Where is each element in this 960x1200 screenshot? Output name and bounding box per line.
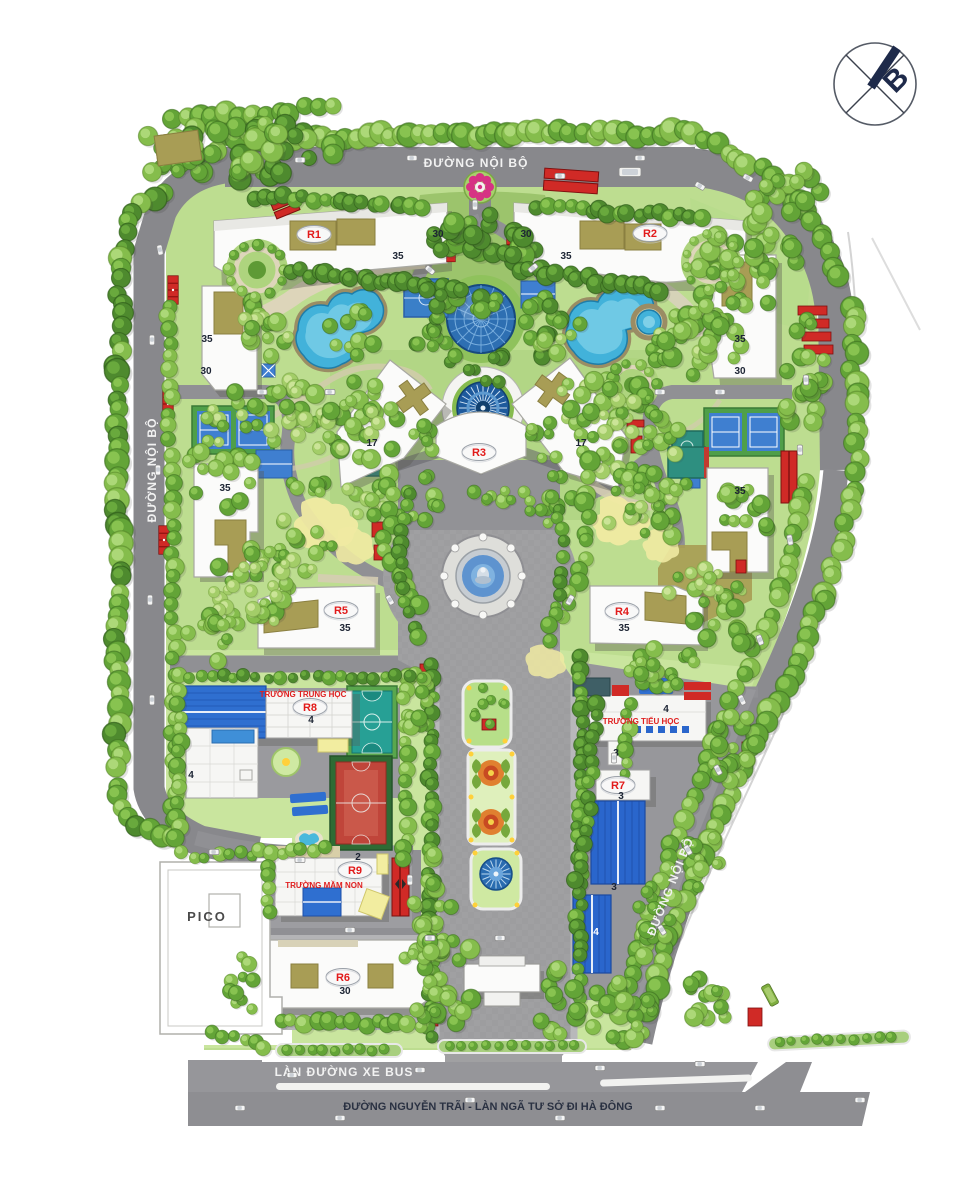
svg-text:30: 30: [734, 366, 746, 377]
svg-text:3: 3: [611, 882, 617, 893]
svg-text:35: 35: [734, 486, 746, 497]
svg-text:R9: R9: [348, 865, 362, 877]
svg-text:ĐƯỜNG NỘI BỘ: ĐƯỜNG NỘI BỘ: [424, 155, 529, 170]
svg-text:35: 35: [734, 334, 746, 345]
svg-text:30: 30: [520, 229, 532, 240]
svg-text:30: 30: [339, 986, 351, 997]
svg-text:4: 4: [663, 704, 669, 715]
svg-text:4: 4: [593, 927, 599, 938]
svg-text:35: 35: [201, 334, 213, 345]
svg-text:35: 35: [618, 623, 630, 634]
svg-text:R2: R2: [643, 228, 657, 240]
svg-text:R5: R5: [334, 605, 348, 617]
svg-text:R6: R6: [336, 972, 350, 984]
svg-text:R4: R4: [615, 606, 630, 618]
svg-text:R8: R8: [303, 702, 317, 714]
svg-text:17: 17: [575, 438, 587, 449]
svg-text:17: 17: [366, 438, 378, 449]
svg-text:3: 3: [618, 791, 624, 802]
svg-text:TRƯỜNG TRUNG HỌC: TRƯỜNG TRUNG HỌC: [260, 690, 347, 699]
svg-text:R3: R3: [472, 447, 486, 459]
svg-text:30: 30: [200, 366, 212, 377]
svg-text:2: 2: [355, 852, 361, 863]
svg-text:TRƯỜNG TIỂU HỌC: TRƯỜNG TIỂU HỌC: [603, 717, 680, 726]
svg-text:35: 35: [339, 623, 351, 634]
svg-text:PICO: PICO: [187, 909, 227, 924]
svg-text:4: 4: [308, 715, 314, 726]
svg-text:35: 35: [560, 251, 572, 262]
svg-text:4: 4: [188, 770, 194, 781]
svg-text:35: 35: [219, 483, 231, 494]
svg-text:R1: R1: [307, 229, 321, 241]
svg-text:TRƯỜNG MẦM NON: TRƯỜNG MẦM NON: [285, 880, 363, 890]
svg-text:35: 35: [392, 251, 404, 262]
svg-text:ĐƯỜNG NGUYỄN TRÃI - LÀN NGÃ TƯ: ĐƯỜNG NGUYỄN TRÃI - LÀN NGÃ TƯ SỞ ĐI HÀ …: [343, 1100, 632, 1113]
svg-text:30: 30: [432, 229, 444, 240]
